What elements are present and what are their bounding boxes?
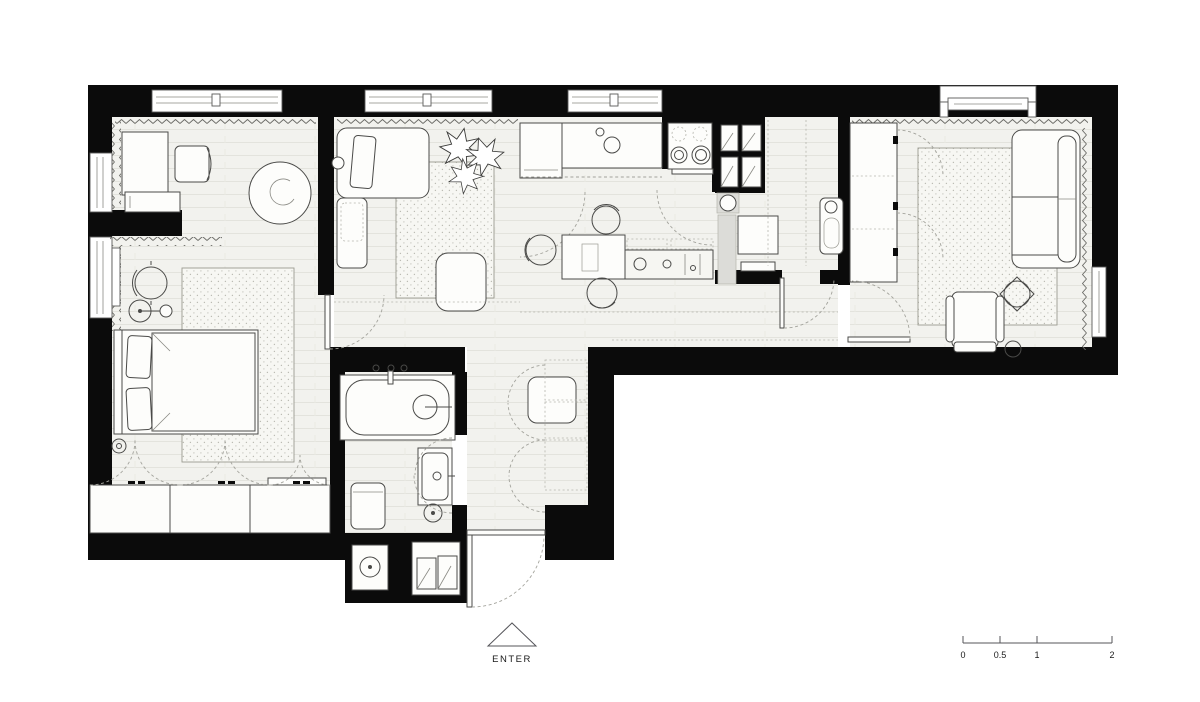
scale-label-2: 2 [1109, 650, 1114, 660]
kids-side-unit [337, 198, 367, 268]
pillow-bottom [126, 387, 152, 430]
annotations: ENTER 0 0.5 1 2 [488, 623, 1115, 665]
enter-label: ENTER [492, 654, 532, 665]
window-bedroom-left-2 [90, 237, 112, 318]
living-armchair [946, 292, 1004, 352]
wall-utility-stub [820, 270, 838, 284]
bathroom-washbasin [418, 448, 455, 505]
desk-cabinet [125, 192, 180, 212]
kids-pillow [350, 135, 376, 189]
zigzag-kids-top [337, 119, 518, 128]
enter-arrow-icon [488, 623, 536, 646]
floor-plan-drawing: ENTER 0 0.5 1 2 [0, 0, 1200, 702]
wall-study-partition [88, 210, 182, 236]
bathtub-spout [388, 371, 393, 384]
round-rug [249, 162, 311, 224]
cooktop-lip [672, 169, 713, 174]
scale-bar: 0 0.5 1 2 [960, 636, 1114, 660]
desk-chair [175, 146, 209, 182]
utility-sink [720, 195, 736, 211]
wall-hall-right [588, 347, 614, 560]
utility-desk [738, 216, 778, 254]
wall-bathroom-top [330, 347, 465, 372]
wall-right-of-entrance [545, 505, 590, 560]
sofa [1012, 130, 1080, 268]
bed-knob [332, 157, 344, 169]
enter-marker: ENTER [488, 623, 536, 665]
wall-bottom-left-wing [88, 533, 348, 560]
zigzag-study-top [115, 119, 316, 128]
dining-table [562, 235, 625, 279]
cooktop [668, 123, 713, 174]
window-bedroom-left-1 [90, 153, 112, 212]
utility-washbasin [820, 198, 843, 254]
toilet [351, 483, 385, 529]
entrance-threshold [467, 530, 545, 535]
floor-plan-page: ENTER 0 0.5 1 2 [0, 0, 1200, 702]
niche-meter [352, 545, 388, 590]
scale-label-1: 1 [1034, 650, 1039, 660]
wall-bedroom-kidsroom [318, 85, 334, 295]
entrance-door-swing [472, 535, 544, 607]
kids-bed [332, 128, 429, 198]
wall-living-left [838, 85, 850, 285]
zigzag-bedroom-partition [110, 237, 222, 246]
bedroom-radiator [112, 248, 120, 306]
utility-bench [741, 262, 775, 271]
wall-bathroom-right-lower [452, 505, 467, 533]
window-study [152, 90, 282, 112]
bathtub [340, 365, 455, 440]
window-kids-room [365, 90, 492, 112]
niche-shelf [412, 542, 460, 595]
pillow-top [126, 335, 152, 378]
entrance-door [467, 530, 545, 607]
zigzag-living-right [1081, 128, 1090, 350]
desk [122, 132, 168, 195]
window-kitchen [568, 90, 662, 112]
utility-cabinet [718, 215, 736, 284]
double-bed [114, 330, 258, 434]
entrance-door-leaf [467, 535, 472, 607]
scale-bar-line [963, 636, 1112, 643]
kitchen-counter [562, 123, 662, 168]
scale-label-0: 0 [960, 650, 965, 660]
zigzag-study-left [112, 121, 121, 209]
wall-bottom-right-wing [612, 347, 1118, 375]
scale-label-05: 0.5 [994, 650, 1007, 660]
floor-hall [467, 345, 588, 533]
hall-bench [528, 377, 576, 423]
pouf [436, 253, 486, 311]
